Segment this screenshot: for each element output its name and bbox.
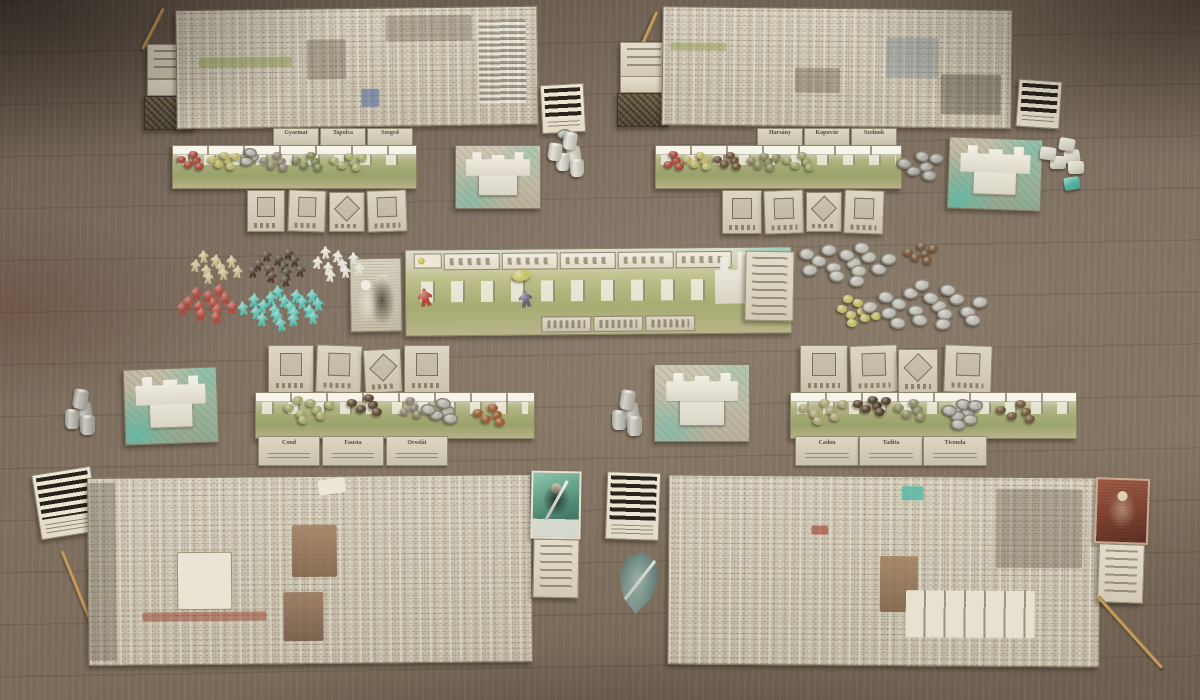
strip-mr-tan-piece [799,404,810,413]
strip-ur-red-piece [664,161,673,168]
coins-silver-lower-piece [965,314,981,326]
coins-silver-lower-piece [877,290,894,303]
coins-silver-upper-piece [828,269,845,282]
coins-silver-lower-piece [922,291,940,305]
strip-ul-yellow-piece [231,153,240,160]
meeples-darkbrown-piece [280,273,292,287]
meeples-tan-piece [197,250,209,263]
strip-mr-brown-piece [875,408,885,416]
strip-mr-brown2-piece [1025,415,1035,423]
die-teal-piece [1063,175,1081,190]
coins-silver-lower-piece [971,295,988,308]
coins-silver-upper-piece [799,247,816,260]
board-meeple-red-piece [415,287,434,308]
resources-brown-pile-piece [923,257,932,264]
coins-ur-side-piece [914,150,931,163]
tokens-yellow-pile-piece [847,319,858,328]
strip-ul-grey-piece [267,162,276,169]
strip-ul-red-piece [195,163,204,170]
strip-ur-green-piece [791,162,800,169]
coins-silver-upper-piece [853,241,870,254]
cylinders-grey-right-piece [618,389,636,411]
strip-mr-brown2-piece [1007,412,1017,420]
strip-ul-lightgreen-piece [352,164,361,171]
strip-ul-lightgreen-piece [358,154,367,161]
meeples-tan-piece [190,258,203,272]
strip-ur-brown-piece [732,163,741,170]
coins-silver-upper-piece [802,263,819,276]
strip-mr-olive-piece [916,413,926,421]
cylinders-grey-right-piece [612,410,627,430]
strip-mr-brown2-piece [996,406,1007,415]
meeples-white-piece [319,246,331,259]
strip-mr-tan-piece [830,413,840,421]
strip-mr-tan-piece [812,417,823,426]
strip-ul-coins-piece [240,156,253,165]
strip-mr-olive-piece [902,410,912,418]
strip-ur-red-piece [675,163,684,170]
strip-ml-orange-piece [481,415,491,423]
meeples-darkbrown-piece [260,249,272,262]
strip-ul-grey-piece [279,164,288,171]
coins-silver-lower-piece [890,317,907,329]
tokens-yellow-pile-piece [871,311,882,320]
strip-ul-green-piece [314,164,323,171]
resources-brown-pile-piece [928,245,937,252]
strip-ml-green-piece [284,404,295,413]
strip-ml-green-piece [298,416,309,425]
dice-white-piece [1058,136,1076,151]
strip-mr-coins-piece [968,400,983,411]
meeples-teal-piece [236,300,250,315]
strip-ur-green-piece [805,164,814,171]
coins-silver-lower-piece [913,278,930,291]
table-surface: Gyarmat Tapolca Szeged Harsány Kapuvár S… [0,0,1200,700]
cylinders-grey-left-piece [80,415,95,435]
strip-ul-yellow-piece [226,163,235,170]
strip-ml-grey-piece [413,411,422,418]
strip-ur-yellow-piece [702,163,711,170]
strip-mr-tan-piece [838,400,848,408]
coins-silver-lower-piece [911,313,928,326]
tokens-yellow-pile-piece [843,295,853,304]
meeples-tan-piece [225,255,236,268]
strip-ur-olive-piece [771,154,780,161]
strip-ul-green-piece [300,162,309,169]
cylinders-grey-left-piece [65,409,80,429]
token-layer [0,0,1200,700]
strip-ur-olive-piece [766,164,775,171]
strip-ml-coins-piece [443,413,458,424]
coins-ur-side-piece [922,170,937,181]
strip-ml-green-piece [316,412,326,420]
dice-white-piece [1039,146,1057,161]
meeples-red-piece [189,285,202,299]
tokens-yellow-pile-piece [860,314,870,322]
coins-ur-side-piece [929,153,944,164]
meeples-white-piece [312,255,325,269]
strip-ml-green-piece [324,400,334,408]
coins-silver-upper-piece [838,248,856,262]
cylinders-grey-left-piece [71,388,89,410]
coins-silver-upper-piece [881,252,898,265]
strip-ml-brown-piece [372,408,382,416]
strip-ur-brown-piece [720,160,729,167]
strip-ur-yellow-piece [690,160,699,167]
resources-brown-pile-piece [911,254,920,261]
board-meeple-purple-piece [517,289,535,308]
coins-silver-lower-piece [935,317,952,330]
cylinders-white-piece [569,159,583,177]
meeples-white-piece [347,252,358,265]
strip-mr-brown-piece [861,405,871,413]
strip-ul-lightgreen-piece [338,161,347,168]
strip-ml-green-piece [292,395,302,404]
strip-ml-orange-piece [495,418,505,426]
dice-white-piece [1068,161,1084,174]
strip-ml-grey-piece [400,408,409,415]
resources-brown-pile-piece [903,248,913,256]
cylinders-grey-right-piece [627,416,642,436]
strip-mr-brown-piece [881,397,891,405]
coins-silver-upper-piece [821,244,838,256]
board-disc-yellow-piece [511,269,532,283]
strip-ml-brown-piece [356,405,366,413]
meeples-red-piece [209,310,222,325]
